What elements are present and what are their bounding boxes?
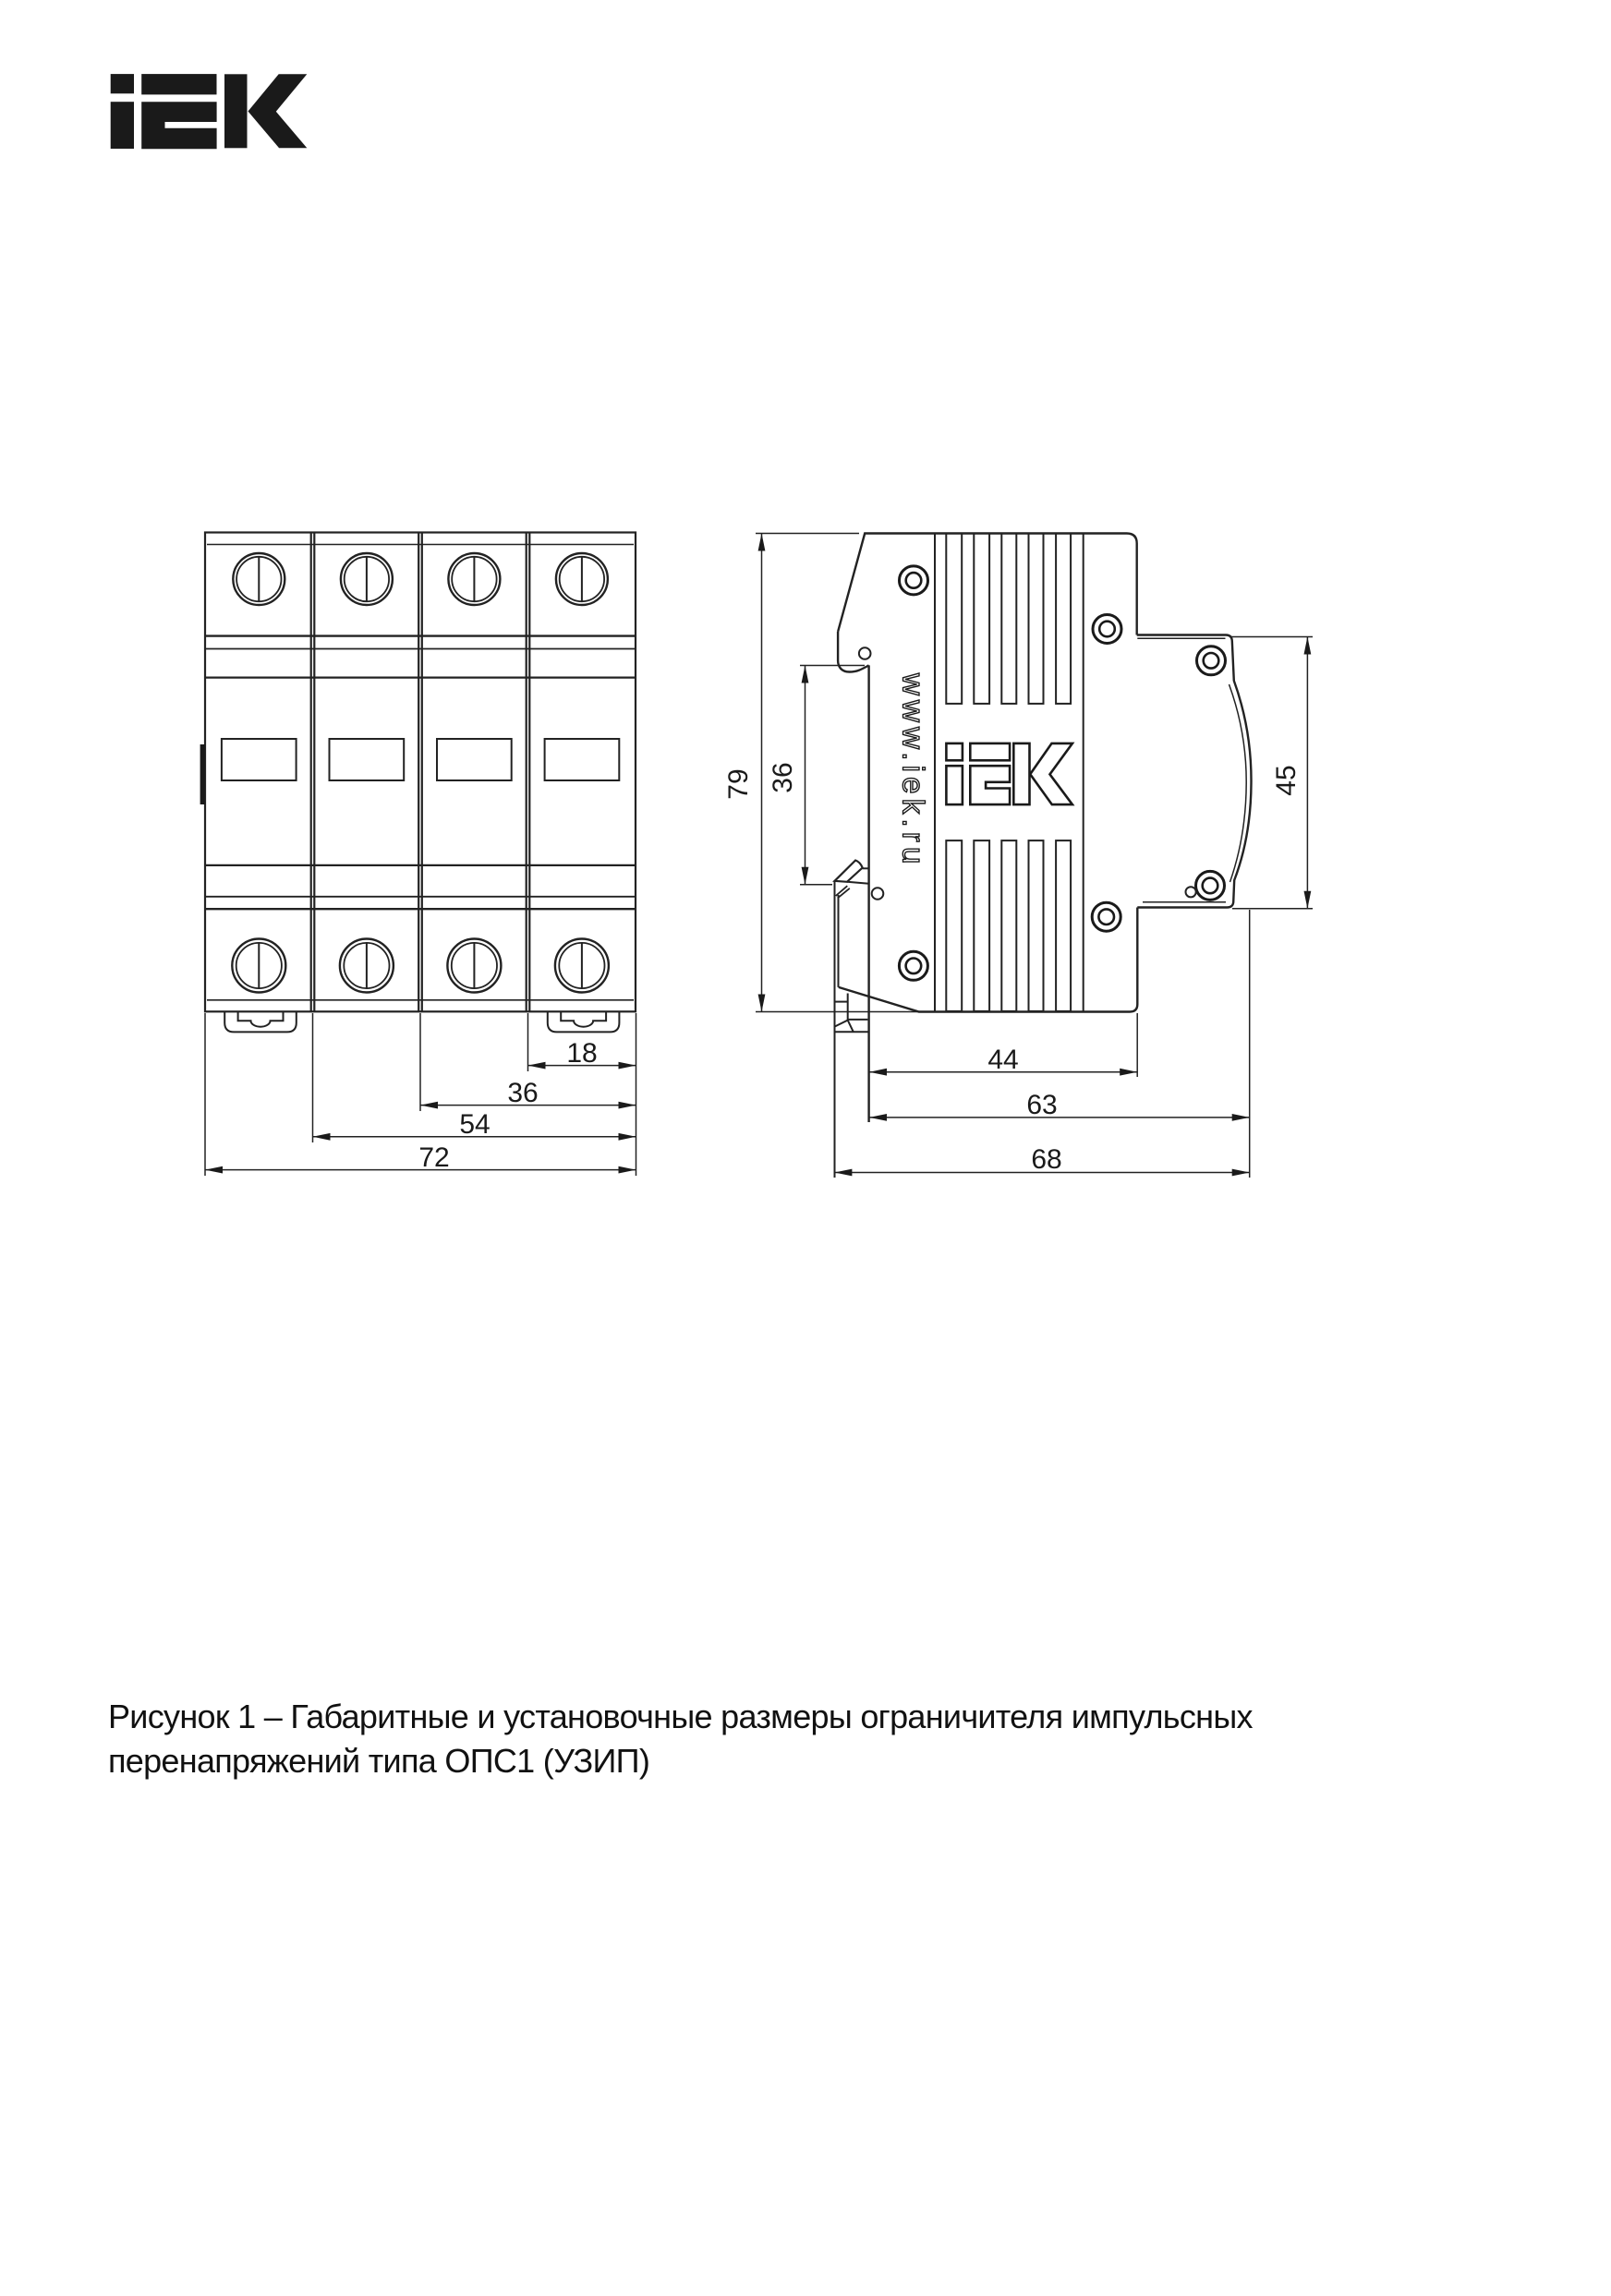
svg-text:36: 36 — [768, 762, 798, 792]
svg-text:54: 54 — [459, 1109, 490, 1140]
svg-text:63: 63 — [1026, 1090, 1057, 1120]
svg-text:36: 36 — [507, 1078, 538, 1108]
svg-text:45: 45 — [1271, 765, 1302, 795]
svg-text:Рисунок 1 – Габаритные и устан: Рисунок 1 – Габаритные и установочные ра… — [108, 1698, 1253, 1735]
svg-text:www.iek.ru: www.iek.ru — [897, 672, 931, 869]
svg-text:79: 79 — [723, 768, 754, 799]
svg-text:72: 72 — [418, 1142, 449, 1173]
svg-text:18: 18 — [566, 1038, 597, 1069]
svg-text:перенапряжений типа ОПС1 (УЗИП: перенапряжений типа ОПС1 (УЗИП) — [108, 1742, 649, 1780]
svg-text:44: 44 — [987, 1045, 1018, 1075]
svg-text:68: 68 — [1031, 1144, 1061, 1175]
